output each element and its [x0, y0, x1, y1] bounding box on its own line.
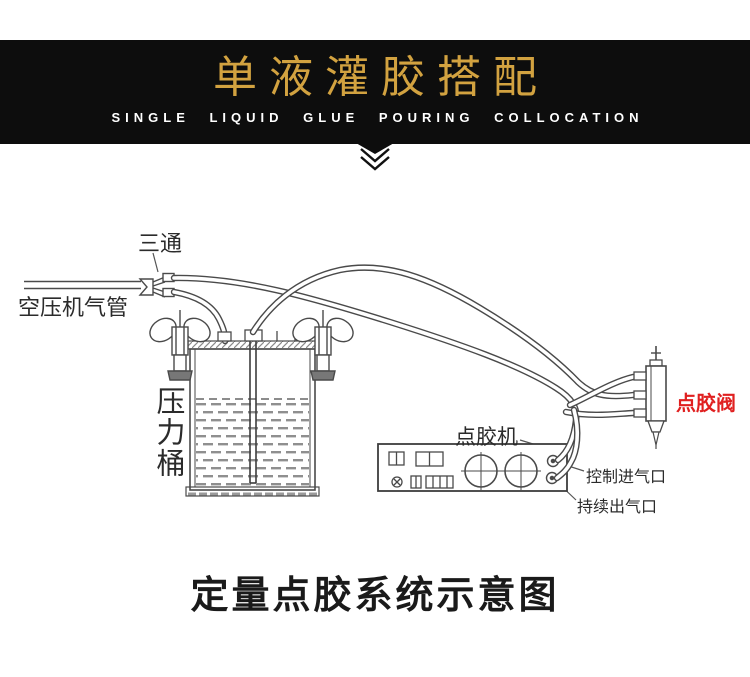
- header-title-cn: 单液灌胶搭配: [0, 53, 750, 103]
- barrel-base: [186, 487, 319, 496]
- label-air-pipe: 空压机气管: [18, 290, 128, 322]
- label-valve: 点胶阀: [676, 387, 736, 416]
- pressure-barrel: [186, 330, 319, 496]
- label-dispenser: 点胶机: [455, 421, 518, 451]
- diagram-caption: 定量点胶系统示意图: [0, 564, 750, 619]
- label-pressure-barrel: 压力桶: [147, 386, 189, 479]
- header-banner: 单液灌胶搭配 SINGLE LIQUID GLUE POURING COLLOC…: [0, 40, 750, 144]
- label-tee: 三通: [138, 226, 182, 258]
- dispensing-valve: [634, 346, 666, 449]
- dispenser-controller: [378, 444, 567, 491]
- glue-liquid: [196, 399, 309, 487]
- tee-fitting: [140, 274, 174, 298]
- header-title-en: SINGLE LIQUID GLUE POURING COLLOCATION: [0, 110, 750, 125]
- label-control-inlet: 控制进气口: [586, 463, 666, 487]
- lid-left-fitting: [218, 332, 231, 341]
- down-chevron-icon: [356, 143, 394, 169]
- air-pipe: [24, 282, 141, 289]
- barrel-lid: [188, 341, 317, 349]
- label-continuous-outlet: 持续出气口: [577, 493, 657, 517]
